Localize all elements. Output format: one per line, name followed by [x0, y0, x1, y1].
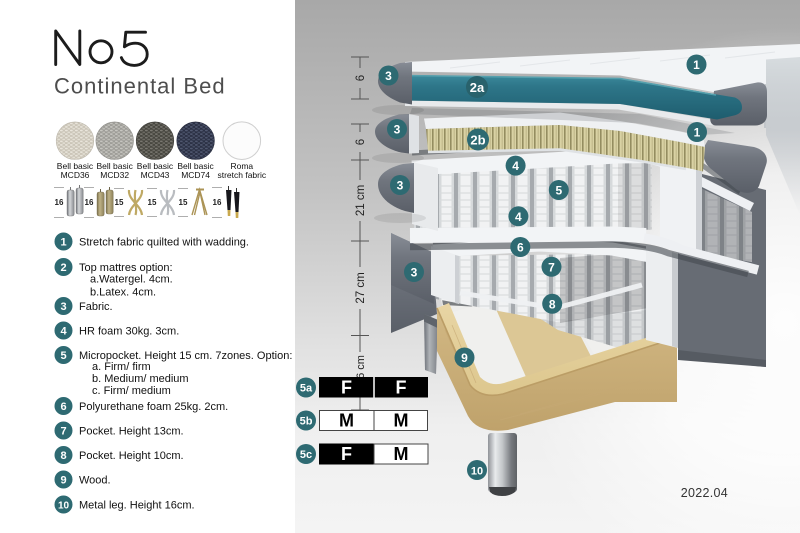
svg-text:HR foam 30kg. 3cm.: HR foam 30kg. 3cm.	[79, 326, 179, 338]
svg-text:MCD43: MCD43	[141, 170, 170, 180]
svg-text:3: 3	[385, 69, 392, 83]
svg-text:3: 3	[411, 266, 418, 280]
svg-text:F: F	[341, 378, 352, 398]
svg-text:b.Latex. 4cm.: b.Latex. 4cm.	[90, 287, 156, 299]
svg-text:6: 6	[517, 241, 524, 255]
svg-text:6: 6	[355, 75, 367, 81]
svg-text:5c: 5c	[300, 449, 312, 461]
svg-text:5: 5	[60, 350, 66, 362]
svg-text:5a: 5a	[300, 383, 313, 395]
svg-text:1: 1	[694, 126, 701, 140]
svg-text:16: 16	[213, 198, 222, 207]
svg-text:Metal leg. Height 16cm.: Metal leg. Height 16cm.	[79, 500, 195, 512]
svg-text:6: 6	[60, 401, 66, 413]
svg-text:Pocket. Height 13cm.: Pocket. Height 13cm.	[79, 426, 184, 438]
svg-text:3: 3	[397, 179, 404, 193]
svg-text:Top mattres option:: Top mattres option:	[79, 262, 173, 274]
svg-text:MCD36: MCD36	[61, 170, 90, 180]
svg-text:1: 1	[60, 237, 66, 249]
svg-text:21 cm: 21 cm	[355, 185, 367, 216]
svg-text:15: 15	[148, 198, 157, 207]
svg-text:Polyurethane foam 25kg. 2cm.: Polyurethane foam 25kg. 2cm.	[79, 401, 228, 413]
svg-text:Pocket. Height 10cm.: Pocket. Height 10cm.	[79, 450, 184, 462]
svg-text:3: 3	[60, 301, 66, 313]
svg-text:c. Firm/ medium: c. Firm/ medium	[92, 385, 171, 397]
svg-text:a.Watergel. 4cm.: a.Watergel. 4cm.	[90, 274, 173, 286]
svg-text:2022.04: 2022.04	[681, 486, 728, 500]
svg-text:2b: 2b	[470, 133, 485, 148]
svg-text:7: 7	[60, 426, 66, 438]
svg-text:7: 7	[548, 260, 555, 274]
svg-text:3: 3	[394, 123, 401, 137]
svg-text:8: 8	[60, 450, 66, 462]
svg-text:MCD74: MCD74	[181, 170, 210, 180]
svg-text:16: 16	[85, 198, 94, 207]
svg-text:27 cm: 27 cm	[355, 272, 367, 303]
svg-text:2a: 2a	[470, 80, 485, 95]
svg-text:15: 15	[179, 198, 188, 207]
svg-text:2: 2	[60, 262, 66, 274]
svg-text:10: 10	[471, 466, 483, 478]
svg-text:F: F	[341, 444, 352, 464]
svg-text:5b: 5b	[300, 416, 313, 428]
svg-text:5: 5	[555, 184, 562, 198]
svg-text:9: 9	[60, 475, 66, 487]
svg-text:16: 16	[55, 198, 64, 207]
svg-text:9: 9	[461, 351, 468, 365]
svg-text:M: M	[339, 411, 354, 431]
svg-text:a. Firm/ firm: a. Firm/ firm	[92, 361, 151, 373]
svg-text:15: 15	[115, 198, 124, 207]
svg-text:10: 10	[58, 501, 70, 512]
svg-text:stretch fabric: stretch fabric	[217, 170, 266, 180]
svg-text:b. Medium/ medium: b. Medium/ medium	[92, 373, 189, 385]
svg-text:M: M	[394, 444, 409, 464]
svg-text:Wood.: Wood.	[79, 475, 111, 487]
svg-text:4: 4	[60, 326, 67, 338]
svg-text:Stretch fabric quilted with wa: Stretch fabric quilted with wadding.	[79, 237, 249, 249]
svg-text:6: 6	[355, 139, 367, 145]
svg-text:Continental Bed: Continental Bed	[54, 74, 226, 99]
svg-text:1: 1	[693, 58, 700, 72]
svg-text:Fabric.: Fabric.	[79, 301, 113, 313]
svg-text:8: 8	[549, 297, 556, 311]
svg-text:4: 4	[515, 210, 522, 224]
svg-text:4: 4	[512, 159, 519, 173]
svg-text:F: F	[396, 378, 407, 398]
svg-text:MCD32: MCD32	[100, 170, 129, 180]
svg-text:M: M	[394, 411, 409, 431]
